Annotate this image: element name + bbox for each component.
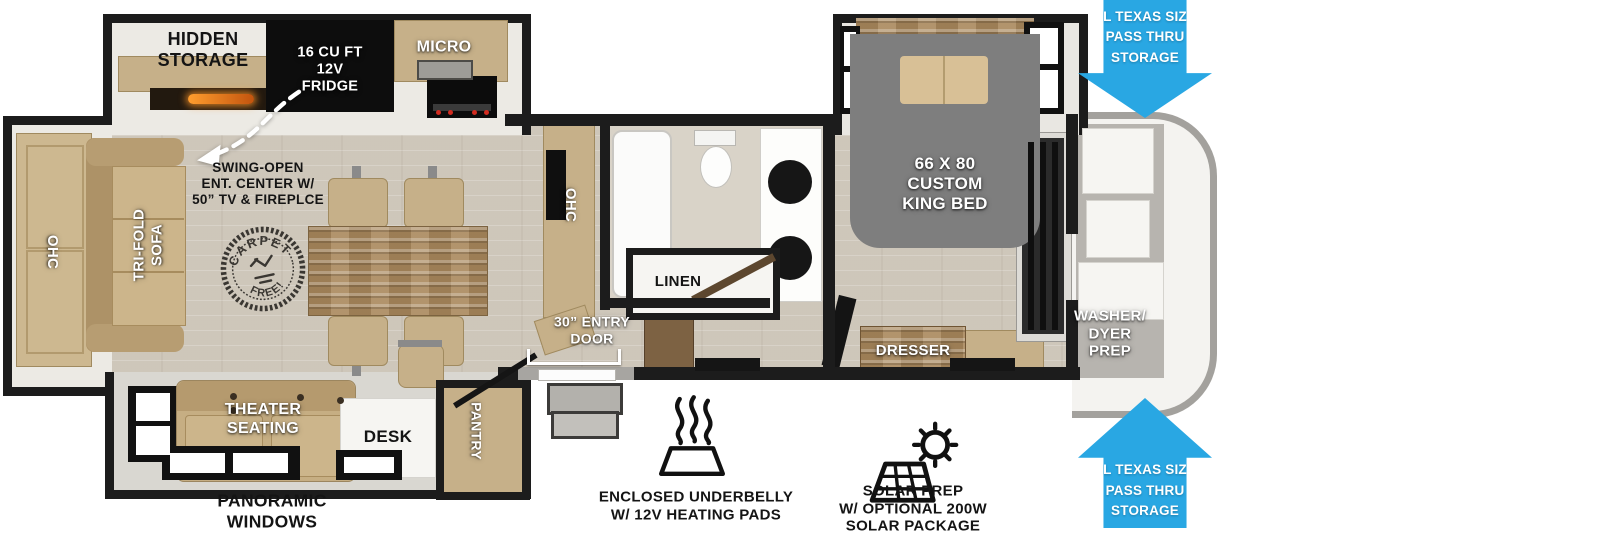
bottom-window-pane — [344, 457, 394, 473]
wardrobe-slat — [1028, 142, 1034, 330]
sink-basin — [768, 160, 812, 204]
wall-bed-bath-divider — [823, 114, 835, 375]
hidden-storage-label: HIDDEN STORAGE — [158, 29, 249, 71]
carpet-free-stamp: CARPET FREE! — [208, 214, 317, 323]
cooktop-knob — [472, 110, 477, 115]
front-cabinet — [1082, 128, 1154, 194]
pantry-label: PANTRY — [468, 402, 485, 460]
pass-thru-arrow-down: XL TEXAS SIZE PASS THRU STORAGE — [1078, 0, 1212, 118]
king-bed-label: 66 X 80 CUSTOM KING BED — [902, 154, 988, 214]
front-cabinet — [1086, 200, 1150, 258]
wardrobe-slat — [1052, 142, 1058, 330]
solar-caption: SOLAR PREP W/ OPTIONAL 200W SOLAR PACKAG… — [839, 482, 987, 535]
cupholder — [337, 397, 344, 404]
dining-chair — [404, 178, 464, 228]
wardrobe-slat — [1040, 142, 1046, 330]
toilet-tank — [694, 130, 736, 146]
entry-steps — [551, 411, 619, 439]
entry-door-dimension-bracket — [527, 349, 621, 365]
rear-ohc-panel — [26, 145, 84, 249]
dining-chair — [328, 316, 388, 366]
pass-thru-label-top: XL TEXAS SIZE PASS THRU STORAGE — [1078, 7, 1212, 68]
dresser-label: DRESSER — [876, 342, 951, 360]
linen-closet — [626, 248, 780, 320]
wall-bathroom-left — [600, 114, 610, 310]
entry-door-label: 30” ENTRY DOOR — [554, 313, 630, 346]
rear-ohc-label: OHC — [43, 235, 61, 269]
washer-dryer-label: WASHER/ DYER PREP — [1074, 307, 1146, 360]
side-window-pane — [136, 426, 170, 455]
ent-center-note-label: SWING-OPEN ENT. CENTER W/ 50” TV & FIREP… — [192, 160, 324, 208]
cooktop-knob — [448, 110, 453, 115]
cooktop-vent — [433, 104, 491, 111]
bed-pillow-seam — [943, 56, 945, 104]
floor-mat — [950, 358, 1015, 371]
bottom-window-pane — [233, 453, 288, 473]
floor-mat — [695, 358, 760, 371]
sofa-back — [86, 138, 112, 352]
sofa-arm — [86, 324, 184, 352]
toilet-bowl — [700, 146, 732, 188]
kitchen-ohc-label: OHC — [561, 188, 579, 222]
underbelly-caption: ENCLOSED UNDERBELLY W/ 12V HEATING PADS — [599, 488, 793, 523]
wall — [505, 114, 610, 126]
stamp-top-text: CARPET — [221, 226, 297, 271]
micro-label: MICRO — [417, 39, 472, 58]
pass-thru-label-bottom: XL TEXAS SIZE PASS THRU STORAGE — [1078, 460, 1212, 521]
theater-seating-label: THEATER SEATING — [225, 401, 301, 439]
cooktop-knob — [484, 110, 489, 115]
sofa-arm — [86, 138, 184, 166]
cupholder — [297, 394, 304, 401]
wall-bath-bottom — [600, 298, 770, 308]
cupholder — [230, 393, 237, 400]
panoramic-windows-label: PANORAMIC WINDOWS — [217, 490, 326, 531]
wall-bathroom-top — [600, 114, 835, 126]
svg-text:CARPET: CARPET — [221, 226, 297, 271]
side-window-pane — [136, 393, 170, 421]
heating-pads-icon — [648, 392, 736, 480]
floorplan-canvas: CARPET FREE! XL TEXAS SIZE PASS THRU STO… — [0, 0, 1600, 535]
cooktop-knob — [436, 110, 441, 115]
linen-label: LINEN — [655, 273, 702, 291]
desk-label: DESK — [364, 427, 412, 447]
bottom-window-pane — [170, 453, 225, 473]
desk-chair-back — [398, 340, 442, 347]
sofa-label: TRI-FOLD SOFA — [130, 209, 165, 281]
entry-door-leaf — [538, 369, 616, 381]
dining-table — [308, 226, 488, 316]
fridge-label: 16 CU FT 12V FRIDGE — [297, 44, 362, 95]
dining-chair — [328, 178, 388, 228]
wall-front-divider — [1066, 114, 1078, 234]
microwave-icon — [417, 60, 473, 80]
